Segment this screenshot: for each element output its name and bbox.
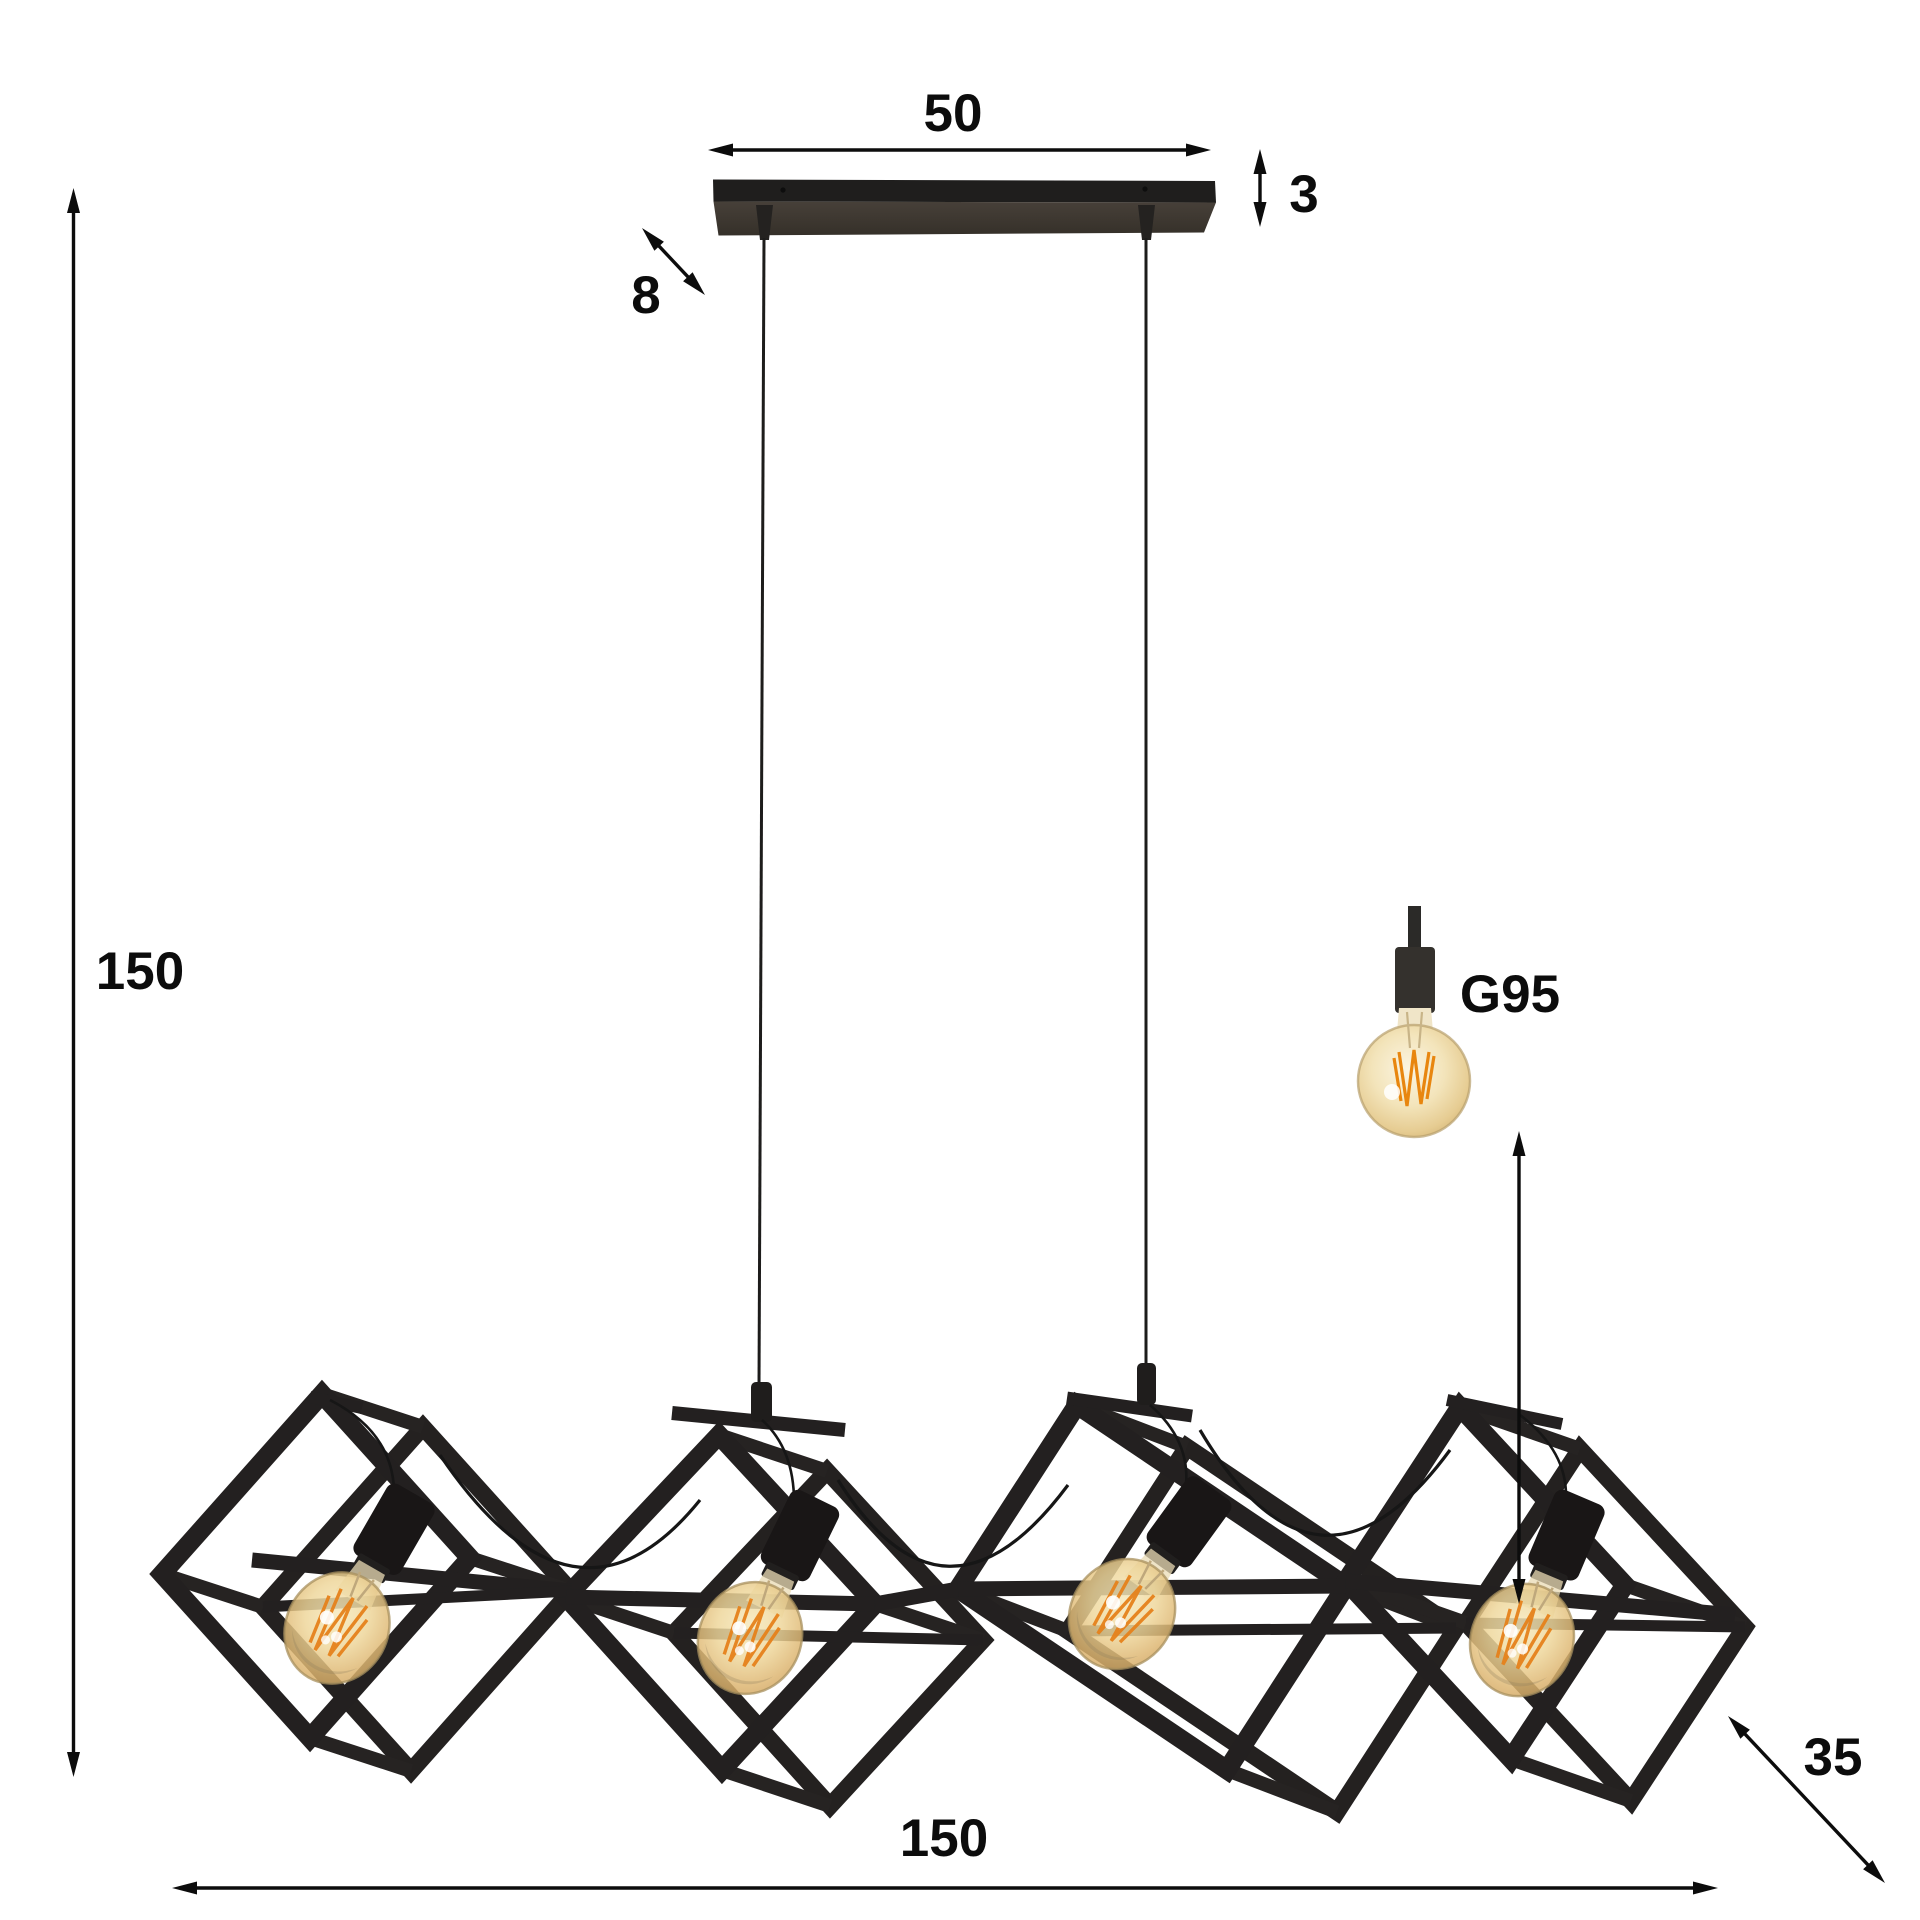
svg-text:150: 150 bbox=[96, 942, 184, 1001]
svg-text:8: 8 bbox=[631, 266, 660, 325]
svg-text:50: 50 bbox=[924, 84, 983, 143]
svg-text:G95: G95 bbox=[1460, 965, 1560, 1024]
svg-text:3: 3 bbox=[1289, 165, 1318, 224]
svg-text:35: 35 bbox=[1804, 1728, 1863, 1787]
svg-text:150: 150 bbox=[900, 1809, 988, 1868]
